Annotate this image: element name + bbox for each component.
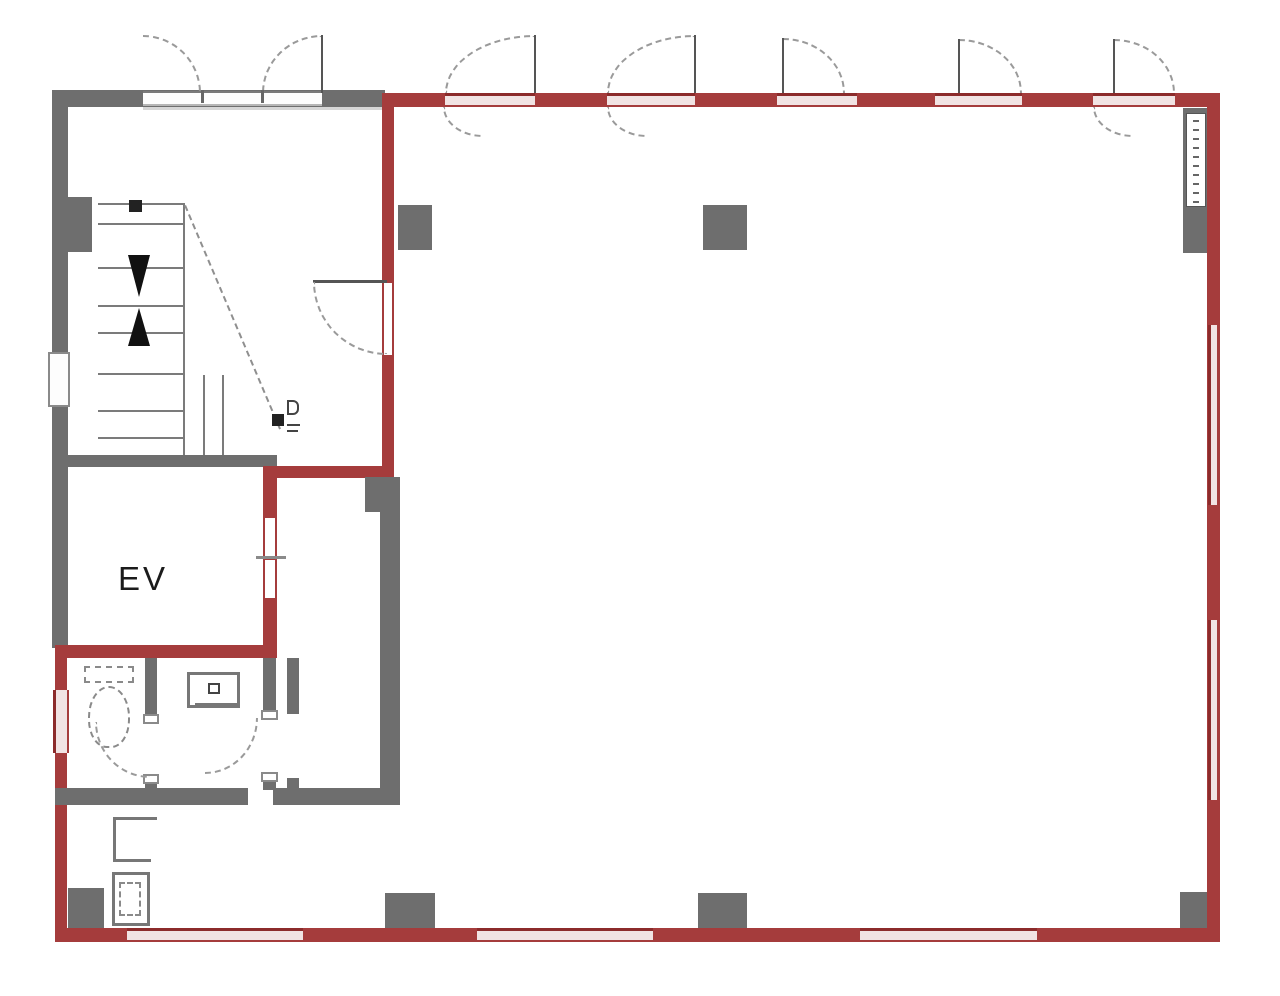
- hydrant-valve-icon: [287, 400, 299, 415]
- stair-tread: [98, 305, 183, 307]
- elevator-door-tick: [256, 556, 286, 559]
- window-bottom: [477, 928, 653, 942]
- stair-up-arrow: [128, 308, 150, 346]
- stair-tread: [98, 373, 183, 375]
- elevator-door: [263, 518, 277, 556]
- column: [1180, 892, 1207, 928]
- door-arc: [143, 35, 201, 93]
- lease-wall-right: [1207, 93, 1220, 941]
- door-jamb: [261, 710, 278, 720]
- window-top-entrance: [143, 91, 322, 106]
- window-right: [1208, 620, 1219, 800]
- door-arc-inward: [1093, 107, 1133, 137]
- door-jamb-tick: [201, 90, 204, 103]
- door-leaf: [782, 38, 784, 93]
- door-opening: [287, 714, 299, 778]
- window-bottom: [127, 928, 303, 942]
- wall-shadow-line: [143, 107, 385, 110]
- window-bottom: [860, 928, 1037, 942]
- wall-toilet-bottom: [55, 788, 248, 805]
- fire-hydrant-icon: [272, 414, 284, 426]
- wall-stair-bottom: [68, 455, 277, 467]
- elevator-door: [263, 560, 277, 598]
- wall-corridor: [380, 478, 400, 805]
- window-top: [1093, 93, 1175, 107]
- door-leaf: [321, 35, 323, 93]
- stair-tread: [98, 410, 183, 412]
- column: [698, 893, 747, 928]
- stair-handrail: [203, 375, 205, 455]
- door-opening: [263, 714, 276, 778]
- floor-plan: EV: [0, 0, 1280, 996]
- shutter-box: [113, 817, 151, 862]
- door-arc: [783, 38, 845, 93]
- sink-faucet-icon: [208, 683, 220, 694]
- door-arc: [607, 35, 695, 93]
- window-top: [777, 93, 857, 107]
- column: [703, 205, 747, 250]
- door-leaf: [694, 35, 696, 93]
- door-jamb-tick: [261, 90, 264, 103]
- stair-stringer: [183, 203, 185, 455]
- utility-sink-basin: [119, 882, 141, 916]
- window-top: [607, 93, 695, 107]
- door-leaf: [958, 39, 960, 93]
- stair-tread: [98, 223, 183, 225]
- door-leaf: [534, 35, 536, 93]
- hydrant-tick: [287, 430, 298, 432]
- door-arc: [95, 722, 150, 778]
- toilet-tank: [84, 666, 134, 683]
- shutter-tick: [149, 817, 157, 820]
- elevator-label: EV: [118, 560, 168, 598]
- door-jamb: [261, 772, 278, 782]
- lease-wall-ev-bottom: [55, 645, 277, 658]
- stair-handrail: [222, 375, 224, 455]
- door-arc: [1114, 39, 1175, 93]
- window-left-stair: [48, 352, 70, 407]
- stair-newel: [129, 200, 142, 212]
- door-arc-inward: [607, 107, 647, 137]
- column: [385, 893, 435, 928]
- window-left: [53, 690, 69, 753]
- stair-tread: [98, 437, 183, 439]
- door-arc: [313, 282, 387, 355]
- door-arc-inward: [443, 107, 483, 137]
- door-arc: [205, 718, 258, 774]
- door-leaf: [1113, 39, 1115, 93]
- column: [398, 205, 432, 250]
- door-arc: [262, 35, 322, 93]
- sink-edge: [195, 703, 237, 708]
- column: [68, 888, 104, 928]
- window-top: [445, 93, 535, 107]
- hydrant-tick: [287, 424, 300, 426]
- pipe-shaft-panel: [1186, 113, 1206, 207]
- stair-down-arrow: [128, 255, 150, 297]
- door-arc: [445, 35, 535, 93]
- window-top: [935, 93, 1022, 107]
- column: [52, 197, 92, 252]
- stair-break-line: [184, 205, 281, 429]
- wall-toilet-bottom: [273, 788, 400, 805]
- window-right: [1208, 325, 1219, 505]
- door-arc: [959, 39, 1022, 93]
